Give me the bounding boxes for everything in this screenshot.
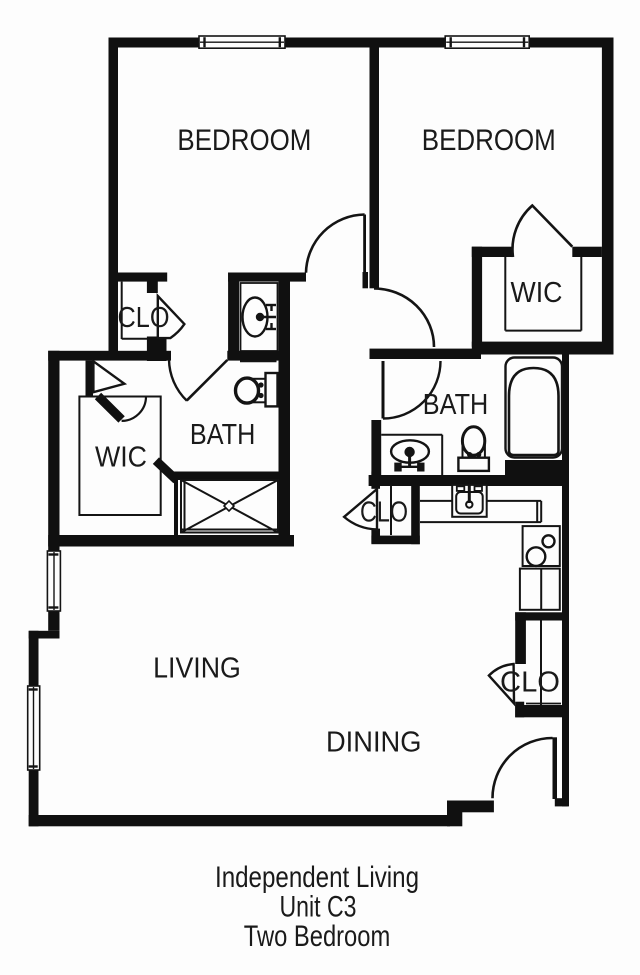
- svg-text:WIC: WIC: [95, 442, 147, 474]
- svg-text:LIVING: LIVING: [153, 653, 241, 685]
- svg-text:CLO: CLO: [500, 667, 560, 699]
- svg-text:WIC: WIC: [511, 277, 563, 309]
- svg-text:Independent Living: Independent Living: [215, 861, 419, 894]
- svg-text:BATH: BATH: [190, 419, 255, 451]
- svg-text:BEDROOM: BEDROOM: [177, 124, 311, 157]
- svg-text:CLO: CLO: [118, 302, 170, 334]
- svg-text:CLO: CLO: [360, 497, 408, 529]
- svg-text:Two Bedroom: Two Bedroom: [244, 920, 391, 953]
- svg-text:Unit C3: Unit C3: [280, 891, 357, 924]
- svg-text:BEDROOM: BEDROOM: [422, 124, 556, 157]
- svg-text:BATH: BATH: [423, 389, 488, 421]
- svg-text:DINING: DINING: [326, 727, 421, 759]
